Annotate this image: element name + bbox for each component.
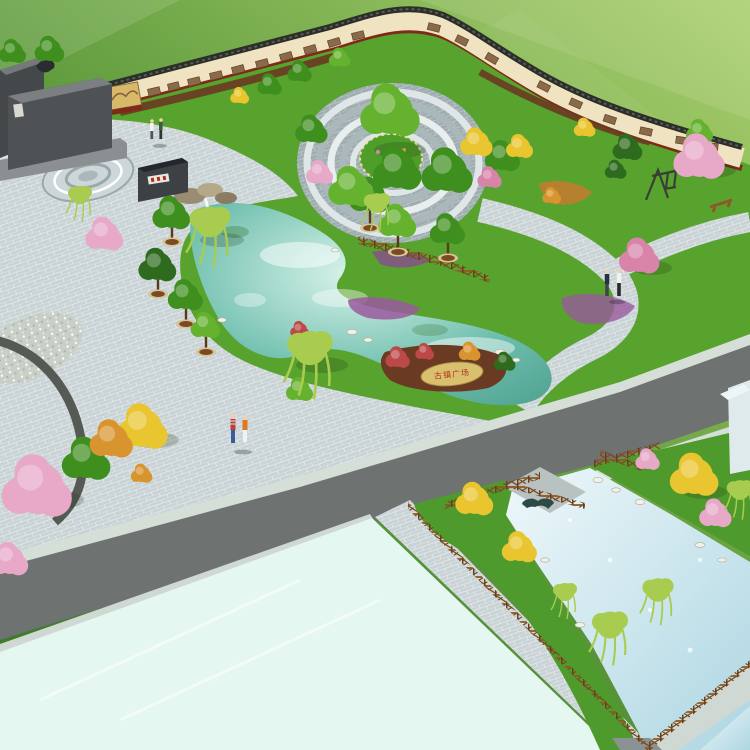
- park-scene-svg: 古镇广场: [0, 0, 750, 750]
- monument-plaque: [13, 103, 24, 117]
- landscape-render: 古镇广场: [0, 0, 750, 750]
